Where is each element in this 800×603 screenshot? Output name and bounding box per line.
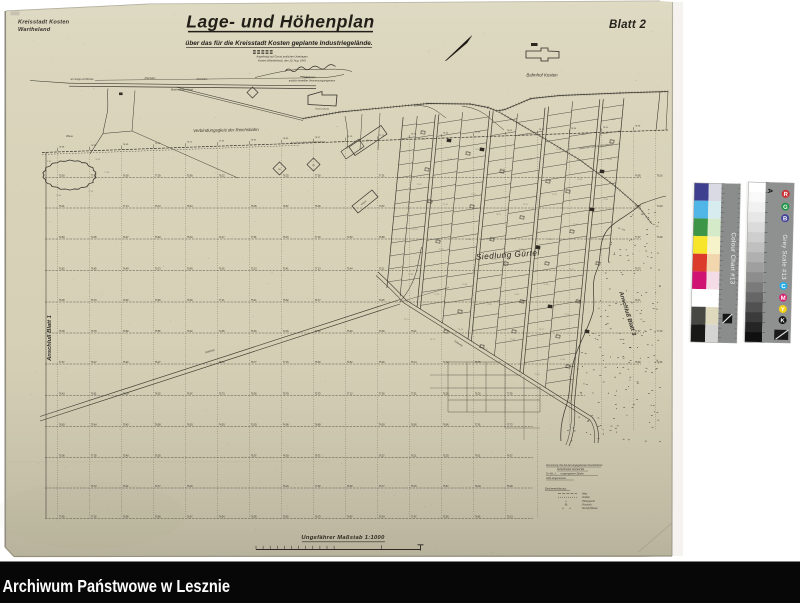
- svg-text:nicht eingemessen.: nicht eingemessen.: [546, 477, 567, 480]
- svg-text:75.53: 75.53: [577, 179, 583, 181]
- svg-text:75.66: 75.66: [155, 516, 161, 518]
- svg-text:am Golge und Brücke: am Golge und Brücke: [70, 78, 94, 81]
- svg-text:76.07: 76.07: [187, 393, 193, 395]
- svg-text:76.16: 76.16: [283, 486, 289, 488]
- svg-text:74.83: 74.83: [59, 237, 65, 239]
- svg-text:76.16: 76.16: [657, 175, 663, 177]
- svg-text:77.21: 77.21: [219, 300, 225, 302]
- svg-text:76.43: 76.43: [59, 393, 65, 395]
- svg-text:75.12: 75.12: [187, 142, 193, 144]
- svg-text:77.12: 77.12: [347, 393, 353, 395]
- svg-text:75.46: 75.46: [347, 331, 353, 333]
- svg-text:74.80: 74.80: [462, 284, 468, 286]
- svg-text:Wartheland: Wartheland: [18, 27, 51, 33]
- svg-text:75.64: 75.64: [187, 206, 193, 208]
- svg-text:Blatt 2: Blatt 2: [609, 19, 647, 31]
- svg-text:75.05: 75.05: [251, 206, 257, 208]
- svg-text:75.07: 75.07: [315, 137, 321, 139]
- svg-text:77.30: 77.30: [556, 149, 562, 151]
- svg-text:75.69: 75.69: [187, 175, 193, 177]
- svg-text:75.90: 75.90: [443, 516, 449, 518]
- svg-text:76.88: 76.88: [379, 237, 385, 239]
- svg-text:Lage- und Höhenplan: Lage- und Höhenplan: [186, 12, 374, 32]
- svg-text:Y: Y: [781, 307, 785, 313]
- svg-text:75.79: 75.79: [283, 393, 289, 395]
- svg-text:75.23: 75.23: [251, 268, 257, 270]
- svg-text:76.27: 76.27: [430, 339, 436, 341]
- svg-text:75.26: 75.26: [155, 455, 161, 457]
- svg-text:75.35: 75.35: [219, 268, 225, 270]
- svg-text:75.96: 75.96: [123, 516, 129, 518]
- svg-text:75.93: 75.93: [59, 175, 65, 177]
- svg-text:77.00: 77.00: [379, 393, 385, 395]
- svg-text:75.43: 75.43: [46, 160, 52, 163]
- svg-text:76.52: 76.52: [547, 239, 553, 241]
- svg-text:77.39: 77.39: [155, 175, 161, 177]
- svg-text:77.67: 77.67: [411, 516, 417, 518]
- svg-text:77.02: 77.02: [573, 224, 579, 226]
- svg-text:74.48: 74.48: [458, 329, 464, 331]
- svg-text:77.92: 77.92: [315, 486, 321, 488]
- svg-text:76.71: 76.71: [635, 300, 641, 302]
- svg-text:nach Posen: nach Posen: [303, 76, 316, 79]
- svg-text:75.46: 75.46: [123, 362, 129, 364]
- svg-text:74.34: 74.34: [492, 259, 498, 261]
- svg-text:76.70: 76.70: [635, 268, 641, 270]
- svg-text:76.89: 76.89: [123, 144, 129, 146]
- svg-text:76.58: 76.58: [155, 424, 161, 426]
- svg-text:76.20: 76.20: [443, 393, 449, 395]
- svg-text:75.09: 75.09: [507, 486, 513, 488]
- svg-text:76.80: 76.80: [123, 331, 129, 333]
- svg-text:75.40: 75.40: [421, 139, 427, 141]
- svg-text:Kleinbahn: Kleinbahn: [145, 77, 156, 80]
- svg-text:77.05: 77.05: [91, 455, 97, 457]
- svg-text:77.32: 77.32: [88, 191, 94, 193]
- svg-text:74.03: 74.03: [507, 130, 513, 132]
- svg-text:75.13: 75.13: [155, 206, 161, 208]
- svg-text:bezeichneten sind auf die: bezeichneten sind auf die: [557, 468, 585, 471]
- svg-text:75.60: 75.60: [315, 362, 321, 364]
- svg-text:76.15: 76.15: [523, 204, 529, 206]
- svg-text:75.49: 75.49: [187, 268, 193, 270]
- svg-text:77.18: 77.18: [434, 294, 440, 296]
- svg-text:75.73: 75.73: [155, 268, 161, 270]
- svg-text:75.54: 75.54: [527, 159, 533, 161]
- svg-text:75.62: 75.62: [283, 300, 289, 302]
- svg-text:Bahnhof Kosten: Bahnhof Kosten: [526, 73, 558, 78]
- svg-text:76.25: 76.25: [283, 175, 289, 177]
- svg-text:76.77: 76.77: [379, 486, 385, 488]
- svg-text:76.27: 76.27: [155, 362, 161, 364]
- svg-text:76.82: 76.82: [283, 138, 289, 140]
- svg-text:76.37: 76.37: [187, 516, 193, 518]
- svg-text:75.43: 75.43: [56, 194, 62, 197]
- svg-text:75.29: 75.29: [251, 424, 257, 426]
- svg-text:74.16: 74.16: [283, 455, 289, 457]
- svg-text:75.68: 75.68: [635, 362, 641, 364]
- svg-text:77.32: 77.32: [657, 331, 663, 333]
- svg-text:75.41: 75.41: [251, 300, 257, 302]
- svg-text:75.16: 75.16: [283, 237, 289, 239]
- svg-text:Ungefährer Maßstab 1:1000: Ungefährer Maßstab 1:1000: [301, 535, 385, 541]
- svg-text:: Sumpf (Wiese): : Sumpf (Wiese): [581, 508, 598, 510]
- svg-text:Kreisstadt Kosten: Kreisstadt Kosten: [18, 20, 70, 26]
- svg-text:76.00: 76.00: [123, 175, 129, 177]
- svg-text:76.85: 76.85: [91, 268, 97, 270]
- svg-text:75.53: 75.53: [475, 149, 481, 151]
- svg-text:75.33: 75.33: [155, 143, 161, 145]
- svg-text:: Höhenpunkt: : Höhenpunkt: [581, 500, 595, 503]
- svg-text:G: G: [783, 205, 788, 211]
- svg-text:77.16: 77.16: [315, 237, 321, 239]
- svg-text:76.52: 76.52: [347, 362, 353, 364]
- svg-text:76.71: 76.71: [315, 455, 321, 457]
- svg-text:75.85: 75.85: [91, 145, 97, 147]
- svg-text:75.14: 75.14: [411, 362, 417, 364]
- svg-text:75.21: 75.21: [411, 331, 417, 333]
- svg-text:76.39: 76.39: [187, 300, 193, 302]
- svg-text:76.98: 76.98: [59, 146, 65, 148]
- svg-text:77.55: 77.55: [507, 393, 513, 395]
- svg-text:75.66: 75.66: [560, 359, 566, 361]
- svg-text:76.27: 76.27: [91, 362, 97, 364]
- svg-text:76.90: 76.90: [411, 424, 417, 426]
- svg-text:75.45: 75.45: [123, 424, 129, 426]
- svg-text:Colour Chart #13: Colour Chart #13: [728, 232, 736, 284]
- svg-text:77.91: 77.91: [657, 362, 663, 364]
- svg-text:74.05: 74.05: [91, 237, 97, 239]
- svg-text:75.34: 75.34: [379, 516, 385, 518]
- svg-text:76.11: 76.11: [411, 455, 417, 457]
- svg-text:75.20: 75.20: [611, 119, 617, 121]
- svg-text:77.13: 77.13: [315, 268, 321, 270]
- svg-text:A: A: [766, 188, 773, 193]
- svg-text:76.25: 76.25: [475, 393, 481, 395]
- svg-text:75.24: 75.24: [603, 199, 609, 201]
- svg-text:77.67: 77.67: [59, 362, 65, 364]
- svg-text:77.95: 77.95: [59, 516, 65, 518]
- svg-text:Gr.-Krt. 1 : ... vorgetragenen: Gr.-Krt. 1 : ... vorgetragenen Zahlen: [546, 473, 584, 476]
- svg-text:: Graben: : Graben: [581, 497, 591, 499]
- svg-text:74.45: 74.45: [466, 239, 472, 241]
- svg-text:74.16: 74.16: [283, 331, 289, 333]
- svg-text:Kosten (Wartheland), den 10. A: Kosten (Wartheland), den 10. Aug. 1941: [258, 58, 306, 62]
- svg-text:75.32: 75.32: [417, 184, 423, 186]
- svg-text:76.87: 76.87: [283, 206, 289, 208]
- svg-text:77.87: 77.87: [91, 175, 97, 177]
- svg-text:76.32: 76.32: [155, 393, 161, 395]
- svg-text:74.14: 74.14: [443, 204, 449, 206]
- svg-text:75.73: 75.73: [219, 393, 225, 395]
- svg-text:76.96: 76.96: [443, 424, 449, 426]
- svg-text:74.53: 74.53: [347, 237, 353, 239]
- svg-text:75.90: 75.90: [251, 516, 257, 518]
- svg-text:75.41: 75.41: [283, 268, 289, 270]
- svg-text:Archiwum Państwowe w Lesznie: Archiwum Państwowe w Lesznie: [3, 576, 231, 596]
- svg-text:77.91: 77.91: [475, 424, 481, 426]
- svg-text:74.96: 74.96: [447, 159, 453, 161]
- svg-text:75.85: 75.85: [155, 331, 161, 333]
- svg-text:M: M: [781, 296, 786, 302]
- svg-text:77.45: 77.45: [219, 141, 225, 143]
- svg-text:74.17: 74.17: [219, 237, 225, 239]
- svg-text:76.75: 76.75: [315, 516, 321, 518]
- svg-text:77.07: 77.07: [510, 339, 516, 341]
- svg-text:Holzhandlung: Holzhandlung: [315, 109, 329, 111]
- svg-text:74.57: 74.57: [379, 206, 385, 208]
- svg-text:76.07: 76.07: [251, 455, 257, 457]
- svg-text:75.06: 75.06: [59, 455, 65, 457]
- svg-text:75.90: 75.90: [379, 362, 385, 364]
- svg-text:74.54: 74.54: [443, 133, 449, 135]
- svg-text:Anmerkung: Die bei den angegeb: Anmerkung: Die bei den angegebenen Grund…: [545, 464, 603, 467]
- svg-text:75.33: 75.33: [187, 237, 193, 239]
- svg-text:75.94: 75.94: [607, 159, 613, 161]
- svg-text:75.20: 75.20: [443, 455, 449, 457]
- svg-text:Zeichenerklärung:: Zeichenerklärung:: [544, 487, 567, 491]
- svg-text:75.67: 75.67: [443, 486, 449, 488]
- svg-text:75.59: 75.59: [411, 134, 417, 136]
- svg-text:75.48: 75.48: [123, 455, 129, 457]
- svg-text:76.99: 76.99: [635, 126, 641, 128]
- svg-text:74.25: 74.25: [496, 214, 502, 216]
- svg-text:75.11: 75.11: [379, 268, 385, 270]
- svg-text:74.11: 74.11: [475, 455, 481, 457]
- svg-text:74.06: 74.06: [283, 424, 289, 426]
- svg-text:74.94: 74.94: [657, 206, 663, 208]
- svg-text:74.80: 74.80: [95, 158, 101, 161]
- svg-text:75.00: 75.00: [187, 486, 193, 488]
- svg-text:76.77: 76.77: [155, 486, 161, 488]
- svg-text:76.90: 76.90: [347, 486, 353, 488]
- svg-text:75.38: 75.38: [59, 331, 65, 333]
- svg-text:76.27: 76.27: [379, 455, 385, 457]
- svg-text:76.79: 76.79: [539, 129, 545, 131]
- svg-text:76.53: 76.53: [187, 424, 193, 426]
- svg-text:76.32: 76.32: [187, 331, 193, 333]
- svg-text:75.44: 75.44: [347, 268, 353, 270]
- svg-text:77.00: 77.00: [315, 175, 321, 177]
- svg-text:77.51: 77.51: [411, 393, 417, 395]
- svg-text:77.32: 77.32: [471, 194, 477, 196]
- svg-text:75.70: 75.70: [91, 300, 97, 302]
- svg-text:76.34: 76.34: [571, 128, 577, 130]
- svg-text:76.90: 76.90: [251, 393, 257, 395]
- svg-text:76.10: 76.10: [412, 229, 418, 231]
- svg-text:Angefertigt auf Grund amtliche: Angefertigt auf Grund amtlicher Unterlag…: [255, 55, 308, 59]
- svg-text:75.75: 75.75: [315, 393, 321, 395]
- svg-text:74.08: 74.08: [408, 274, 414, 276]
- svg-text:76.99: 76.99: [155, 300, 161, 302]
- svg-text:76.90: 76.90: [657, 237, 663, 239]
- svg-text:über das für die Kreisstadt Ko: über das für die Kreisstadt Kosten gepla…: [185, 40, 372, 47]
- svg-text:77.72: 77.72: [507, 424, 513, 426]
- svg-text:77.37: 77.37: [635, 237, 641, 239]
- svg-text:76.49: 76.49: [155, 237, 161, 239]
- svg-text:75.72: 75.72: [91, 486, 97, 488]
- svg-text:74.95: 74.95: [635, 175, 641, 177]
- svg-text:75.77: 75.77: [404, 319, 410, 321]
- svg-text:75.13: 75.13: [507, 516, 513, 518]
- svg-text:74.03: 74.03: [379, 424, 385, 426]
- svg-text:77.78: 77.78: [569, 269, 575, 271]
- svg-text:74.54: 74.54: [219, 516, 225, 518]
- svg-text:75.15: 75.15: [411, 486, 417, 488]
- svg-text:76.81: 76.81: [475, 516, 481, 518]
- svg-text:76.25: 76.25: [379, 300, 385, 302]
- svg-text:76.87: 76.87: [347, 516, 353, 518]
- svg-text:75.77: 75.77: [251, 362, 257, 364]
- svg-text:74.27: 74.27: [507, 455, 513, 457]
- svg-text:75.81: 75.81: [91, 393, 97, 395]
- svg-text:74.53: 74.53: [219, 424, 225, 426]
- svg-text:76.95: 76.95: [251, 139, 257, 141]
- svg-text:75.93: 75.93: [439, 249, 445, 251]
- svg-text:77.02: 77.02: [91, 516, 97, 518]
- svg-text:76.27: 76.27: [123, 237, 129, 239]
- svg-text:76.97: 76.97: [487, 304, 493, 306]
- svg-text:77.17: 77.17: [483, 349, 489, 351]
- svg-text:76.60: 76.60: [123, 300, 129, 302]
- svg-text:77.01: 77.01: [379, 175, 385, 177]
- svg-text:76.49: 76.49: [475, 486, 481, 488]
- svg-text:76.38: 76.38: [59, 300, 65, 302]
- svg-text:76.32: 76.32: [514, 294, 520, 296]
- svg-text:76.06: 76.06: [315, 206, 321, 208]
- svg-text:: Weg: : Weg: [581, 494, 588, 496]
- svg-text:75.92: 75.92: [283, 516, 289, 518]
- svg-text:76.78: 76.78: [91, 331, 97, 333]
- svg-text:76.16: 76.16: [543, 284, 549, 286]
- svg-text:Grey Scale #13: Grey Scale #13: [780, 234, 787, 280]
- svg-text:74.95: 74.95: [219, 331, 225, 333]
- svg-text:76.89: 76.89: [315, 424, 321, 426]
- svg-text:74.17: 74.17: [539, 329, 545, 331]
- svg-text:77.53: 77.53: [104, 172, 110, 174]
- svg-text:77.15: 77.15: [283, 362, 289, 364]
- svg-text:75.82: 75.82: [59, 268, 65, 270]
- svg-text:75.53: 75.53: [535, 374, 541, 376]
- svg-text:Wiese: Wiese: [66, 135, 74, 138]
- svg-text:75.64: 75.64: [91, 424, 97, 426]
- svg-text:75.72: 75.72: [564, 314, 570, 316]
- svg-text:76.15: 76.15: [581, 134, 587, 136]
- svg-text:76.22: 76.22: [219, 175, 225, 177]
- svg-text:75.61: 75.61: [603, 127, 609, 129]
- svg-text:76.62: 76.62: [519, 249, 525, 251]
- svg-text:: Flurstück: : Flurstück: [581, 503, 592, 506]
- svg-text:77.14: 77.14: [123, 206, 129, 208]
- svg-text:76.49: 76.49: [123, 268, 129, 270]
- svg-text:75.31: 75.31: [552, 194, 558, 196]
- svg-text:75.31: 75.31: [59, 206, 65, 208]
- svg-text:75.46: 75.46: [251, 331, 257, 333]
- svg-text:76.36: 76.36: [379, 331, 385, 333]
- svg-text:77.70: 77.70: [500, 169, 506, 171]
- svg-text:Anschluß Blatt 1: Anschluß Blatt 1: [47, 315, 53, 362]
- svg-text:76.77: 76.77: [315, 300, 321, 302]
- svg-text:77.81: 77.81: [251, 237, 257, 239]
- svg-text:Kleinbahn: Kleinbahn: [197, 78, 208, 81]
- svg-text:75.21: 75.21: [123, 486, 129, 488]
- svg-text:76.83: 76.83: [59, 424, 65, 426]
